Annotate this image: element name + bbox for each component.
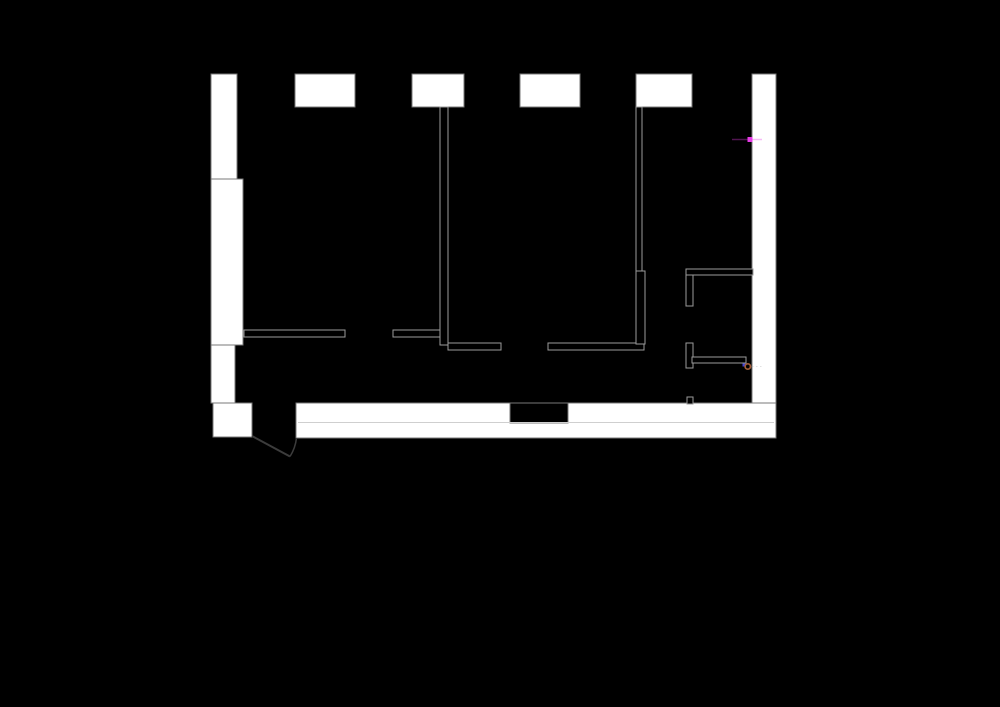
top-wall-pier-4 (636, 74, 692, 107)
bathroom-inner-wall (692, 357, 746, 363)
left-wall-pilaster (211, 179, 243, 345)
top-wall-pier-1 (295, 74, 355, 107)
magenta-vertex-marker (748, 137, 753, 142)
top-wall-pier-2 (412, 74, 464, 107)
right-wall (752, 74, 776, 438)
bathroom-stub-bottom (687, 397, 693, 404)
circle-node-marker (745, 364, 750, 369)
interior-wall-mid-b (548, 343, 644, 350)
left-wall-upper (211, 74, 237, 179)
top-wall-pier-3 (520, 74, 580, 107)
interior-wall-vertical-1 (440, 107, 448, 345)
bottom-wall-opening-notch (510, 403, 568, 423)
floor-plan-canvas[interactable] (0, 0, 1000, 707)
interior-wall-left-b (393, 330, 441, 337)
interior-wall-mid-a (448, 343, 501, 350)
entry-door-swing-arc (290, 438, 297, 457)
bathroom-stub-lower (686, 343, 693, 368)
bathroom-stub-upper (686, 275, 693, 306)
bathroom-top-wall (686, 269, 753, 275)
cad-viewport (0, 0, 1000, 707)
left-wall-lower (211, 345, 235, 403)
interior-wall-vertical-2-upper (636, 107, 642, 271)
bottom-wall-left-stub (213, 403, 252, 437)
entry-door-leaf (252, 436, 290, 457)
interior-wall-left-a (244, 330, 345, 337)
interior-wall-vertical-2-lower (636, 271, 645, 344)
